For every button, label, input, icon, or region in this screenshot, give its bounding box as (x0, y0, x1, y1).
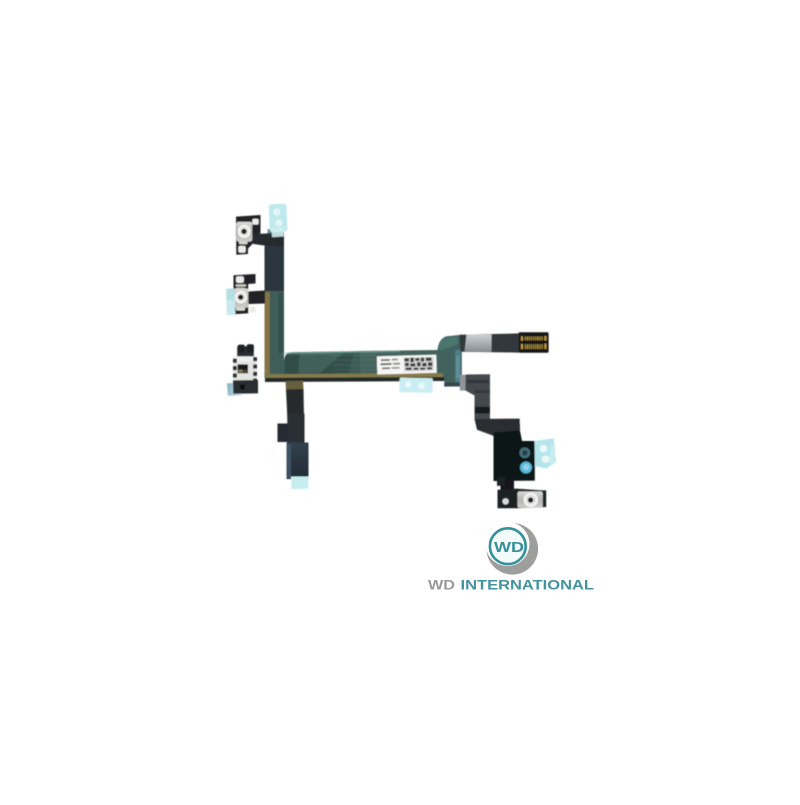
svg-text:INTERNATIONAL: INTERNATIONAL (461, 578, 595, 593)
svg-text:WD: WD (494, 539, 524, 556)
svg-text:WD: WD (428, 578, 455, 593)
